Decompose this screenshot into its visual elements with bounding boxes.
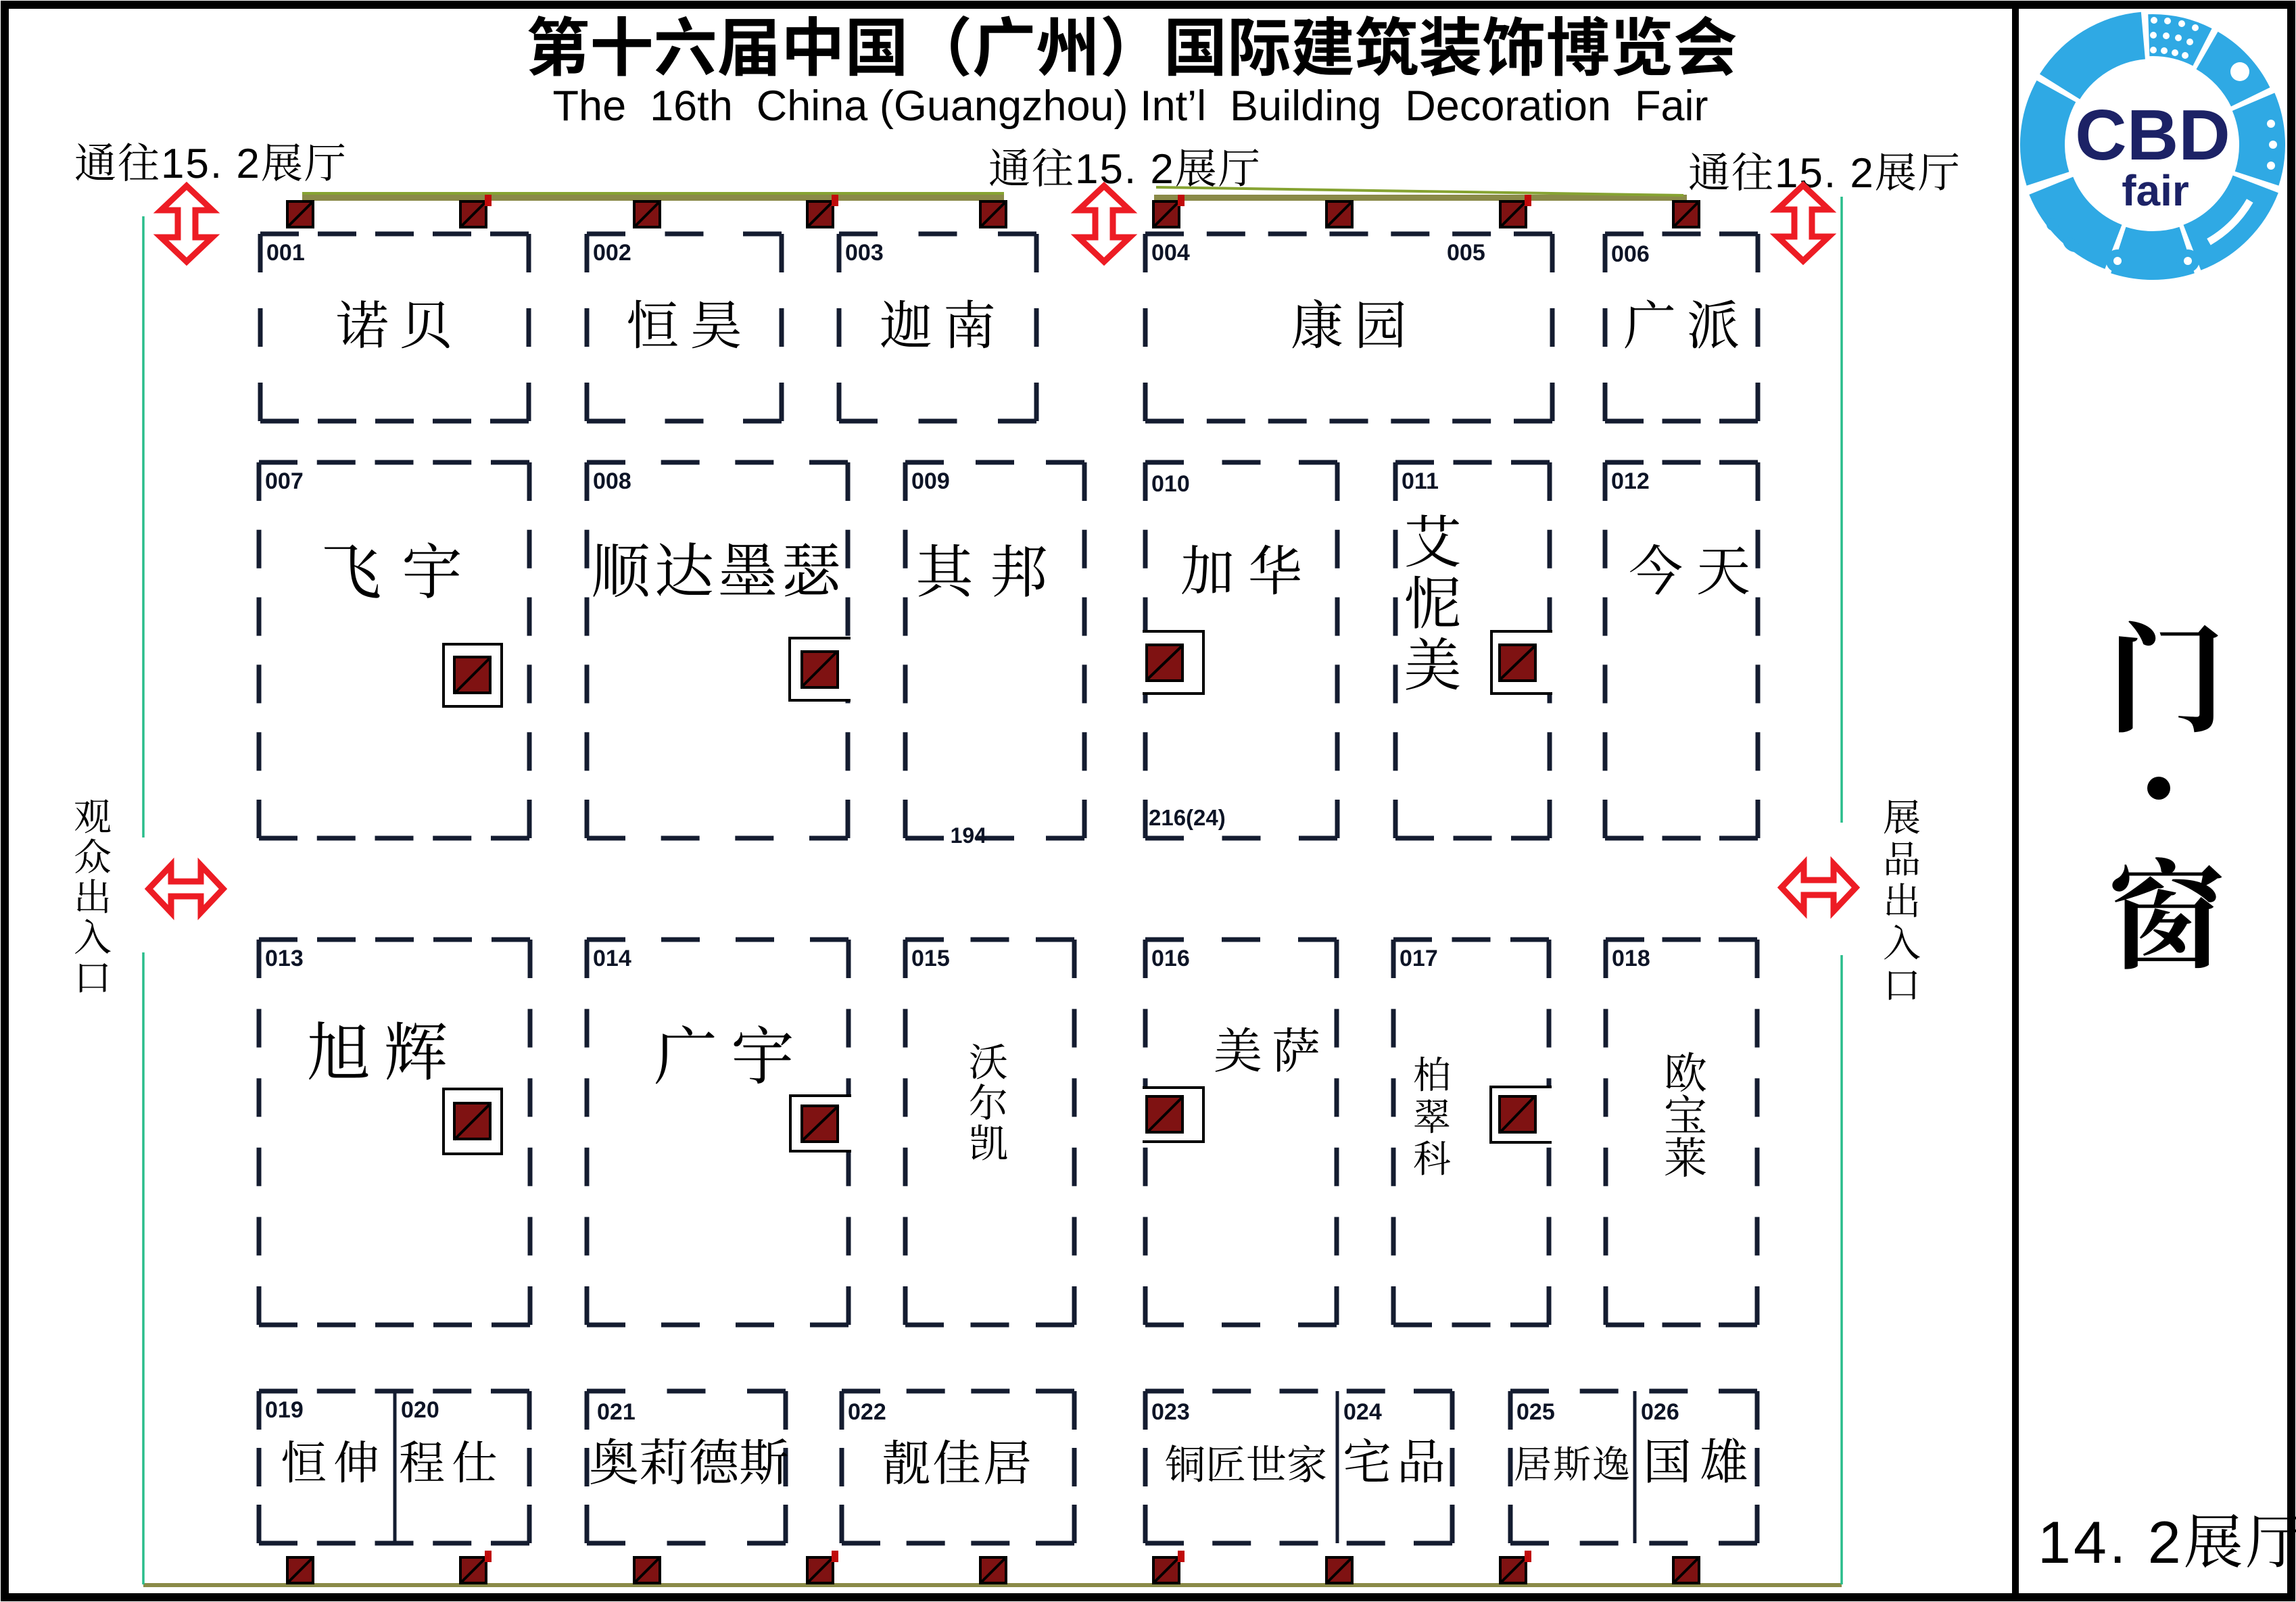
svg-text:006: 006: [1611, 241, 1650, 267]
svg-text:010: 010: [1151, 471, 1190, 497]
svg-text:194: 194: [951, 823, 987, 848]
svg-text:026: 026: [1641, 1399, 1679, 1425]
svg-text:013: 013: [265, 946, 304, 971]
svg-text:022: 022: [848, 1399, 886, 1425]
svg-text:004: 004: [1151, 240, 1190, 266]
svg-text:024: 024: [1343, 1399, 1382, 1425]
svg-text:008: 008: [593, 468, 631, 494]
svg-text:002: 002: [593, 240, 631, 266]
svg-text:The 16th China (Guangzhou) I: The 16th China (Guangzhou) Int’l Buildin…: [553, 82, 1708, 130]
svg-text:020: 020: [401, 1397, 439, 1423]
svg-text:005: 005: [1447, 240, 1485, 266]
svg-text:014: 014: [593, 946, 631, 971]
svg-text:019: 019: [265, 1397, 304, 1423]
svg-text:021: 021: [597, 1399, 636, 1425]
svg-text:015: 015: [911, 946, 950, 971]
svg-text:216(24): 216(24): [1149, 805, 1226, 830]
svg-text:011: 011: [1402, 468, 1439, 494]
svg-text:018: 018: [1612, 946, 1650, 971]
svg-text:025: 025: [1516, 1399, 1555, 1425]
svg-text:fair: fair: [2122, 166, 2189, 215]
svg-text:CBD: CBD: [2075, 95, 2230, 175]
svg-text:016: 016: [1151, 946, 1190, 971]
svg-text:012: 012: [1611, 468, 1650, 494]
svg-text:007: 007: [265, 468, 304, 494]
svg-text:003: 003: [845, 240, 884, 266]
svg-text:023: 023: [1151, 1399, 1190, 1425]
svg-text:017: 017: [1400, 946, 1438, 971]
svg-text:001: 001: [266, 240, 305, 266]
svg-text:009: 009: [911, 468, 950, 494]
